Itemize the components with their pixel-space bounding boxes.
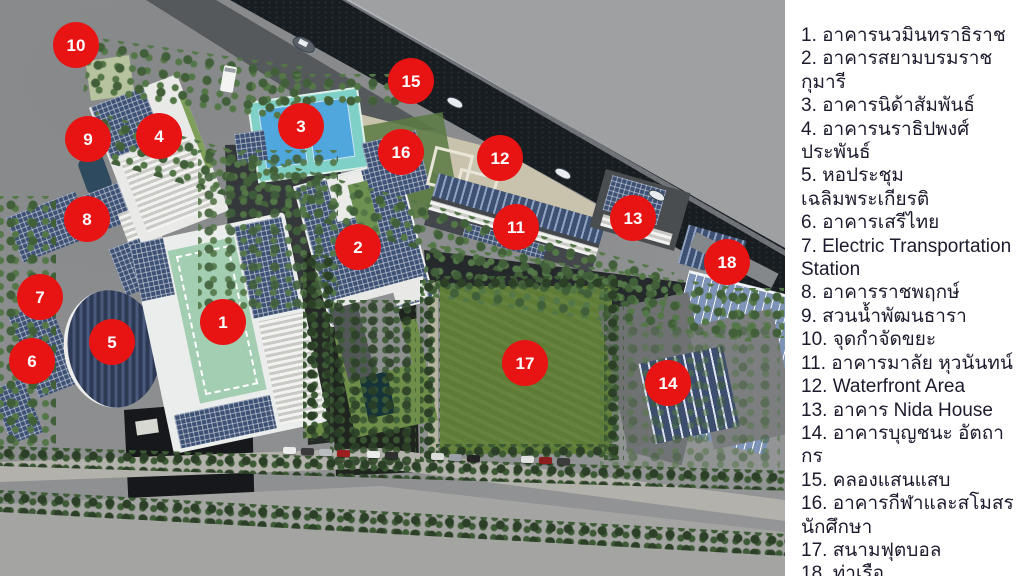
parked-car — [301, 448, 314, 455]
map-marker-6: 6 — [9, 338, 55, 384]
map-marker-9: 9 — [65, 116, 111, 162]
marker-number: 12 — [491, 150, 510, 167]
marker-number: 6 — [27, 353, 36, 370]
marker-number: 4 — [154, 128, 163, 145]
legend-item-2: 2. อาคารสยามบรมราชกุมารี — [801, 47, 1018, 94]
legend-item-5: 5. หอประชุมเฉลิมพระเกียรติ — [801, 164, 1018, 211]
legend-item-15: 15. คลองแสนแสบ — [801, 469, 1018, 492]
legend-item-3: 3. อาคารนิด้าสัมพันธ์ — [801, 94, 1018, 117]
legend-item-text: 3. อาคารนิด้าสัมพันธ์ — [801, 95, 975, 116]
marker-number: 10 — [67, 37, 86, 54]
campus-map-figure: 123456789101112131415161718 1. อาคารนวมิ… — [0, 0, 1024, 576]
legend-item-text: 18. ท่าเรือ — [801, 563, 884, 576]
parked-car — [319, 449, 332, 456]
tree-cluster — [600, 322, 780, 468]
map-marker-18: 18 — [704, 239, 750, 285]
map-marker-4: 4 — [136, 113, 182, 159]
map-marker-11: 11 — [493, 204, 539, 250]
legend-list: 1. อาคารนวมินทราธิราช2. อาคารสยามบรมราชก… — [801, 24, 1018, 576]
tree-cluster — [303, 255, 333, 441]
marker-number: 8 — [82, 211, 91, 228]
legend-item-text: 4. อาคารนราธิปพงศ์ประพันธ์ — [801, 119, 969, 163]
map-marker-7: 7 — [17, 274, 63, 320]
map-marker-3: 3 — [278, 103, 324, 149]
map-marker-16: 16 — [378, 129, 424, 175]
marker-number: 3 — [296, 118, 305, 135]
legend-item-text: 14. อาคารบุญชนะ อัตถากร — [801, 423, 1004, 467]
building-1-solar-roof — [174, 395, 277, 449]
legend-item-18: 18. ท่าเรือ — [801, 562, 1018, 576]
legend-item-12: 12. Waterfront Area — [801, 375, 1018, 398]
legend-item-8: 8. อาคารราชพฤกษ์ — [801, 281, 1018, 304]
marker-number: 14 — [659, 375, 678, 392]
tree-cluster — [252, 74, 402, 108]
legend-item-text: 17. สนามฟุตบอล — [801, 540, 941, 561]
map-marker-13: 13 — [610, 195, 656, 241]
legend-item-text: 12. Waterfront Area — [801, 376, 965, 397]
parked-car — [557, 458, 570, 465]
parked-car — [385, 452, 398, 459]
marker-number: 1 — [218, 314, 227, 331]
legend-item-text: 15. คลองแสนแสบ — [801, 470, 950, 491]
parked-car — [367, 451, 380, 458]
legend-item-text: 6. อาคารเสรีไทย — [801, 212, 939, 233]
legend-item-text: 11. อาคารมาลัย หุวนันทน์ — [801, 353, 1013, 374]
marker-number: 2 — [353, 239, 362, 256]
map-marker-15: 15 — [388, 58, 434, 104]
map-marker-1: 1 — [200, 299, 246, 345]
marker-number: 16 — [392, 144, 411, 161]
parked-car — [467, 455, 480, 462]
legend-item-text: 10. จุดกำจัดขยะ — [801, 329, 936, 350]
legend-item-13: 13. อาคาร Nida House — [801, 399, 1018, 422]
legend-item-text: 7. Electric Transportation Station — [801, 236, 1011, 280]
marker-number: 18 — [718, 254, 737, 271]
campus-aerial-map: 123456789101112131415161718 — [0, 0, 785, 576]
field-hedge — [604, 288, 624, 460]
tree-cluster — [722, 288, 784, 338]
legend-item-11: 11. อาคารมาลัย หุวนันทน์ — [801, 352, 1018, 375]
map-marker-14: 14 — [645, 360, 691, 406]
marker-number: 9 — [83, 131, 92, 148]
marker-number: 5 — [107, 334, 116, 351]
parked-car — [283, 447, 296, 454]
tree-cluster — [0, 196, 56, 452]
legend-item-17: 17. สนามฟุตบอล — [801, 539, 1018, 562]
legend-item-4: 4. อาคารนราธิปพงศ์ประพันธ์ — [801, 118, 1018, 165]
legend-item-text: 9. สวนน้ำพัฒนธารา — [801, 306, 967, 327]
tree-cluster — [330, 300, 416, 470]
legend-item-text: 2. อาคารสยามบรมราชกุมารี — [801, 48, 992, 92]
parked-car — [521, 456, 534, 463]
legend-item-9: 9. สวนน้ำพัฒนธารา — [801, 305, 1018, 328]
legend-item-10: 10. จุดกำจัดขยะ — [801, 328, 1018, 351]
marker-number: 11 — [507, 219, 525, 236]
map-marker-2: 2 — [335, 224, 381, 270]
map-marker-10: 10 — [53, 22, 99, 68]
legend-item-text: 5. หอประชุมเฉลิมพระเกียรติ — [801, 165, 929, 209]
parked-car — [539, 457, 552, 464]
field-hedge — [436, 276, 618, 292]
legend-item-text: 13. อาคาร Nida House — [801, 400, 993, 421]
legend-item-text: 1. อาคารนวมินทราธิราช — [801, 25, 1006, 46]
map-marker-12: 12 — [477, 135, 523, 181]
marker-number: 15 — [402, 73, 421, 90]
parked-car — [431, 453, 444, 460]
parked-car — [449, 454, 462, 461]
parked-car — [337, 450, 350, 457]
map-marker-17: 17 — [502, 340, 548, 386]
legend-item-text: 16. อาคารกีฬาและสโมสรนักศึกษา — [801, 493, 1014, 537]
map-marker-5: 5 — [89, 319, 135, 365]
field-hedge — [420, 280, 440, 462]
marker-number: 7 — [35, 289, 44, 306]
marker-number: 17 — [516, 355, 535, 372]
legend-item-1: 1. อาคารนวมินทราธิราช — [801, 24, 1018, 47]
legend-item-7: 7. Electric Transportation Station — [801, 235, 1018, 282]
marker-number: 13 — [624, 210, 643, 227]
legend-item-text: 8. อาคารราชพฤกษ์ — [801, 282, 960, 303]
legend-item-16: 16. อาคารกีฬาและสโมสรนักศึกษา — [801, 492, 1018, 539]
legend-item-6: 6. อาคารเสรีไทย — [801, 211, 1018, 234]
legend-item-14: 14. อาคารบุญชนะ อัตถากร — [801, 422, 1018, 469]
legend-panel: 1. อาคารนวมินทราธิราช2. อาคารสยามบรมราชก… — [785, 0, 1024, 576]
map-marker-8: 8 — [64, 196, 110, 242]
